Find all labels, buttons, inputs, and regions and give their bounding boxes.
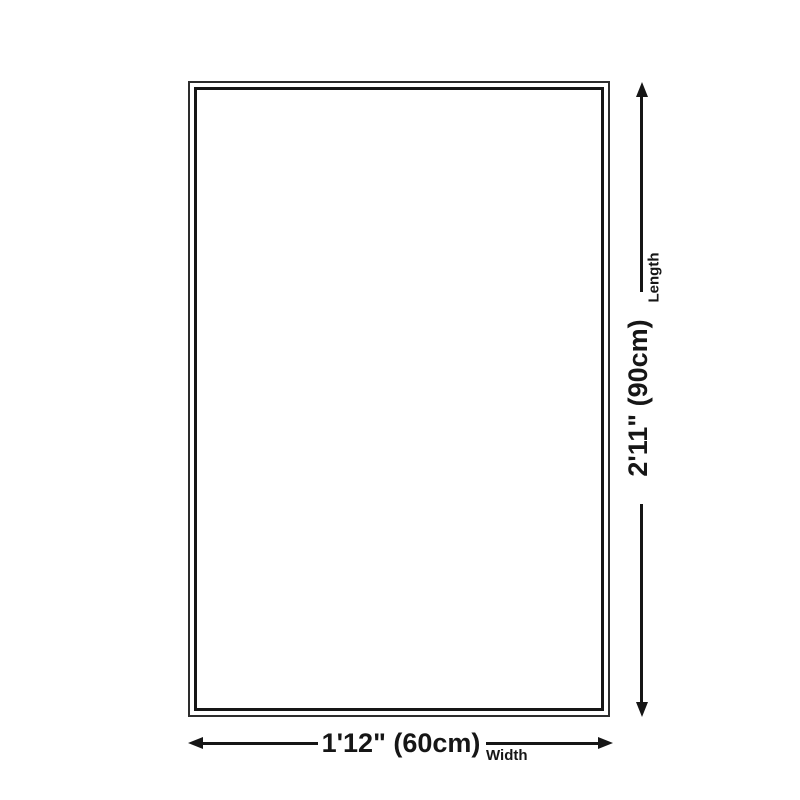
length-dimension-line-top (640, 96, 643, 292)
arrow-left-icon (188, 737, 203, 749)
width-value: 1'12" (60cm) (318, 727, 484, 759)
rug-inner-border (194, 87, 604, 711)
arrow-right-icon (598, 737, 613, 749)
arrow-down-icon (636, 702, 648, 717)
width-dimension-line-left (202, 742, 318, 745)
rug-outline (188, 81, 610, 717)
length-value: 2'11" (90cm) (622, 298, 654, 498)
length-label: Length (646, 238, 663, 318)
length-dimension-line-bottom (640, 504, 643, 702)
size-diagram: 1'12" (60cm) Width 2'11" (90cm) Length (0, 0, 800, 800)
width-dimension-line-right (486, 742, 598, 745)
arrow-up-icon (636, 82, 648, 97)
width-label: Width (486, 747, 528, 764)
